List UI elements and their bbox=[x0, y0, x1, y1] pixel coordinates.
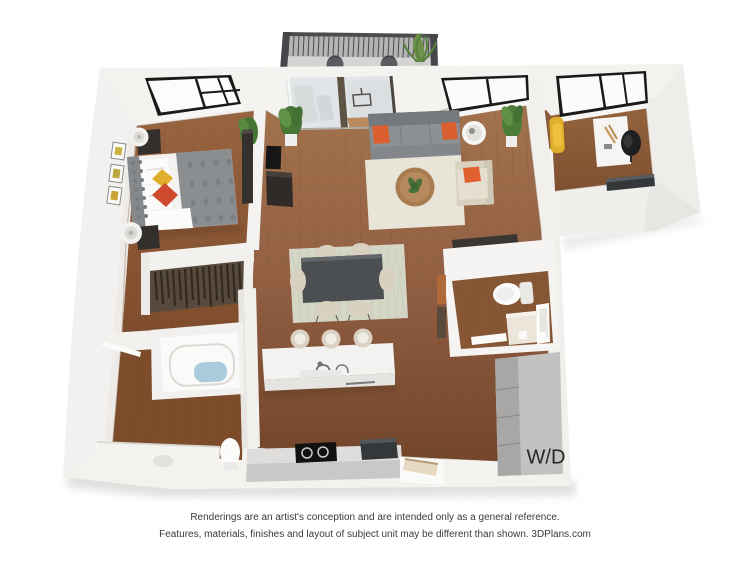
svg-text:W/D: W/D bbox=[527, 447, 566, 469]
